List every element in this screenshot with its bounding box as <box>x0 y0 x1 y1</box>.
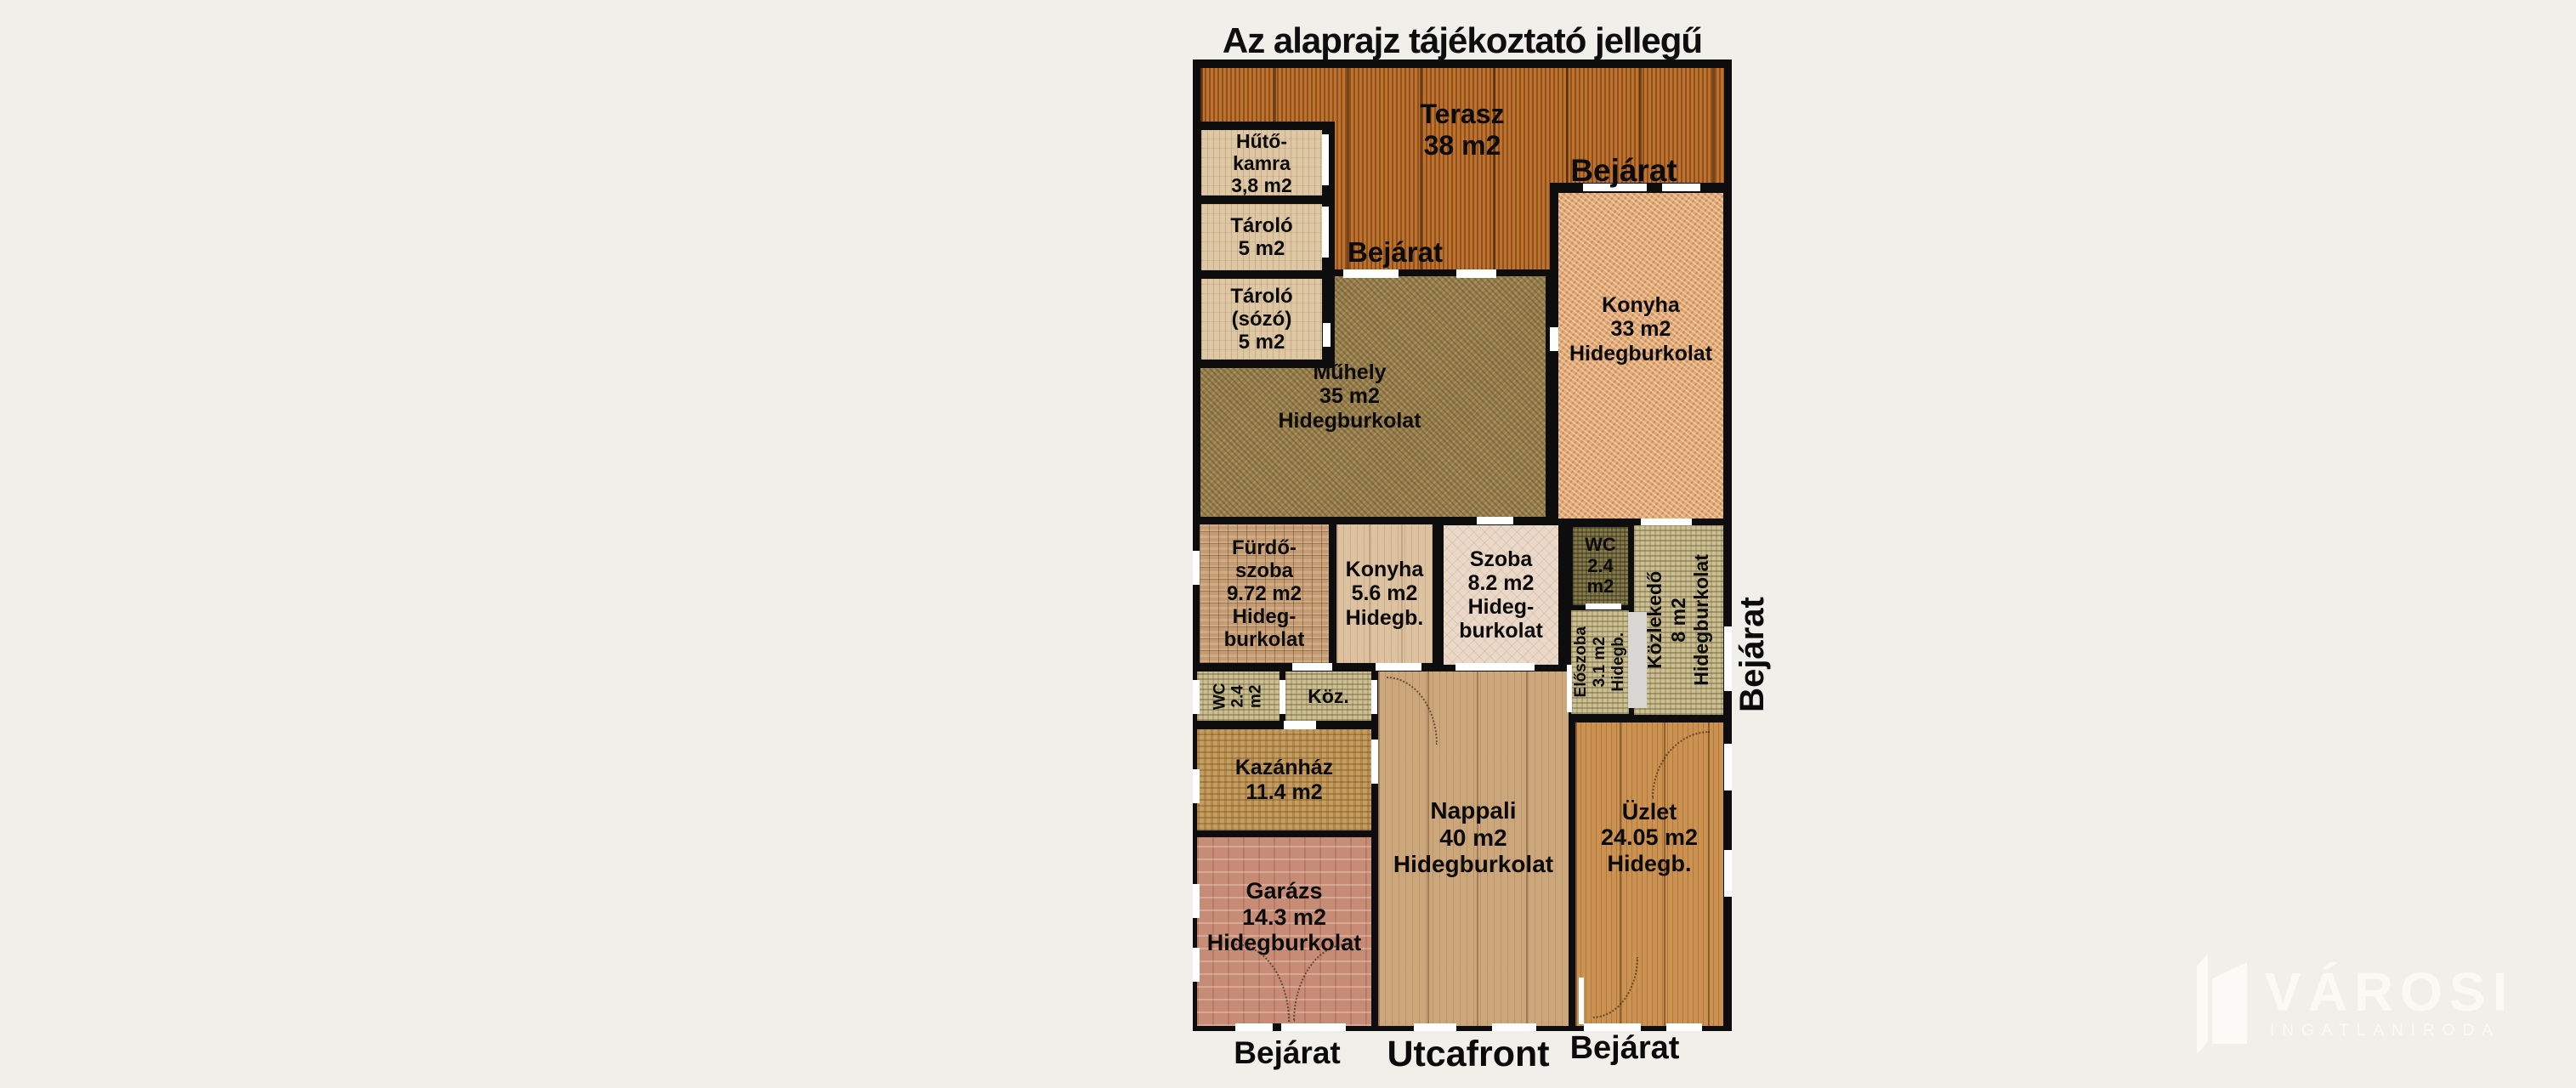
logo-building-right <box>2212 962 2247 1044</box>
room-floor: Hidegburkolat <box>1393 851 1553 878</box>
room-area: 40 m2 <box>1439 824 1506 852</box>
room-wc-felso: WC 2.4 m2 <box>1573 527 1628 605</box>
door-opening <box>1376 663 1421 671</box>
sliding-door-panel <box>1628 612 1647 708</box>
room-label: Garázs <box>1245 878 1322 904</box>
entrance-opening <box>1724 626 1732 691</box>
room-eloszoba: Előszoba 3.1 m2 Hidegb. <box>1571 610 1629 714</box>
storage-column: Hűtő- kamra 3,8 m2 Tároló 5 m2 Tároló (s… <box>1193 122 1335 368</box>
door-opening <box>1279 680 1285 714</box>
room-area: m2 <box>1247 683 1265 710</box>
room-label: Közlekedő <box>1643 554 1667 686</box>
room-koz: Köz. <box>1285 671 1371 721</box>
room-area: 3,8 m2 <box>1231 174 1292 196</box>
door-opening <box>1284 721 1316 729</box>
room-floor: Hidegb. <box>1346 606 1424 630</box>
watermark-tagline: INGATLANIRODA <box>2270 1022 2500 1040</box>
room-area: 9.72 m2 <box>1227 582 1302 605</box>
room-szoba: Szoba 8.2 m2 Hideg- burkolat <box>1444 525 1558 665</box>
window-opening <box>1193 680 1200 714</box>
window-opening <box>1193 551 1200 585</box>
entrance-label-bottom-left: Bejárat <box>1202 1035 1372 1071</box>
room-area: 33 m2 <box>1611 317 1671 341</box>
room-label: (sózó) <box>1232 308 1292 331</box>
room-tarolo-sozo: Tároló (sózó) 5 m2 <box>1201 279 1322 360</box>
door-opening <box>1323 323 1331 347</box>
screenshot: Az alaprajz tájékoztató jellegű Terasz 3… <box>0 0 2576 1088</box>
room-floor: Hideg- <box>1233 605 1297 628</box>
room-label: WC <box>1211 683 1229 710</box>
room-label: Tároló <box>1230 285 1292 308</box>
room-floor: burkolat <box>1224 628 1305 651</box>
room-area: 11.4 m2 <box>1245 780 1322 804</box>
room-floor: Hidegburkolat <box>1278 409 1421 433</box>
kitchen-block: Konyha 33 m2 Hidegburkolat <box>1550 183 1732 525</box>
room-hutokamra: Hűtő- kamra 3,8 m2 <box>1201 130 1322 195</box>
room-label: Köz. <box>1308 685 1349 707</box>
entrance-label-terrace-middle: Bejárat <box>1327 236 1463 269</box>
door-post <box>1273 1023 1281 1031</box>
window-opening <box>1193 769 1200 803</box>
room-area: 5 m2 <box>1239 237 1285 260</box>
room-label: Konyha <box>1602 293 1680 317</box>
room-floor: Hidegburkolat <box>1569 342 1712 365</box>
watermark-brand: VÁROSI <box>2265 960 2514 1023</box>
entrance-label-bottom-right: Bejárat <box>1540 1030 1710 1067</box>
room-area: 8 m2 <box>1667 554 1691 686</box>
room-area: 2.4 <box>1229 683 1247 710</box>
door-opening <box>1579 977 1584 1024</box>
room-area: 35 m2 <box>1319 384 1380 408</box>
plan-title: Az alaprajz tájékoztató jellegű <box>1184 20 1740 61</box>
room-area: 3.1 m2 <box>1591 626 1609 697</box>
door-opening <box>1455 663 1535 671</box>
room-furdoszoba: Fürdő- szoba 9.72 m2 Hideg- burkolat <box>1200 524 1329 663</box>
door-opening <box>1414 1023 1456 1031</box>
room-area: 38 m2 <box>1424 130 1501 161</box>
room-label: Szoba <box>1470 547 1533 571</box>
room-area: m2 <box>1587 576 1614 598</box>
watermark-logo-icon <box>2192 950 2251 1061</box>
window-opening <box>1724 850 1732 897</box>
room-label: Üzlet <box>1622 799 1677 825</box>
room-konyha-kis: Konyha 5.6 m2 Hidegb. <box>1336 524 1433 663</box>
door-opening <box>1456 269 1496 278</box>
room-area: 24.05 m2 <box>1601 824 1698 851</box>
room-label: Terasz <box>1420 99 1504 129</box>
room-label: Fürdő- <box>1232 536 1297 559</box>
room-tarolo: Tároló 5 m2 <box>1201 204 1322 270</box>
room-label: Konyha <box>1346 558 1424 581</box>
room-wc-also: WC 2.4 m2 <box>1197 671 1279 721</box>
window-opening <box>1724 744 1732 790</box>
room-konyha-nagy: Konyha 33 m2 Hidegburkolat <box>1558 193 1723 518</box>
door-opening <box>1371 739 1378 784</box>
room-area: 14.3 m2 <box>1242 904 1326 931</box>
room-label: Hűtő- <box>1236 130 1287 152</box>
garage-door-opening <box>1235 1023 1346 1031</box>
door-opening <box>1322 134 1329 185</box>
entrance-label-right-side: Bejárat <box>1733 569 1771 739</box>
room-floor: Hideg- <box>1468 595 1535 619</box>
door-opening <box>1477 517 1513 524</box>
window-opening <box>1193 884 1200 918</box>
entrance-label-terrace-right: Bejárat <box>1556 153 1692 189</box>
logo-building-left <box>2197 954 2208 1054</box>
room-floor: burkolat <box>1459 619 1543 643</box>
room-label: Előszoba <box>1572 626 1591 697</box>
door-opening <box>1550 327 1558 351</box>
room-label: kamra <box>1233 152 1291 174</box>
room-area: 5 m2 <box>1239 331 1285 354</box>
room-label: Kazánház <box>1235 756 1333 779</box>
door-opening <box>1492 1023 1536 1031</box>
room-floor: Hidegb. <box>1608 851 1692 877</box>
room-floor: Hidegburkolat <box>1690 554 1714 686</box>
room-kazanhaz: Kazánház 11.4 m2 <box>1197 729 1371 830</box>
room-floor: Hidegb. <box>1609 626 1628 697</box>
room-label: szoba <box>1235 559 1293 582</box>
floor-plan: Terasz 38 m2 Műhely 35 m2 Hidegburkolat … <box>1193 59 1732 1031</box>
door-opening <box>1586 603 1621 609</box>
door-opening <box>1371 680 1377 714</box>
room-area: 5.6 m2 <box>1352 581 1418 605</box>
door-opening <box>1641 518 1692 525</box>
door-opening <box>1567 665 1572 712</box>
door-opening <box>1343 269 1399 278</box>
window-opening <box>1193 948 1200 982</box>
room-label: WC <box>1585 535 1616 556</box>
room-label: Nappali <box>1430 797 1516 824</box>
door-opening <box>1292 663 1332 671</box>
room-area: 2.4 <box>1587 556 1614 577</box>
room-label: Tároló <box>1230 214 1292 237</box>
room-kozlekedo: Közlekedő 8 m2 Hidegburkolat <box>1634 525 1723 715</box>
room-area: 8.2 m2 <box>1468 571 1535 595</box>
